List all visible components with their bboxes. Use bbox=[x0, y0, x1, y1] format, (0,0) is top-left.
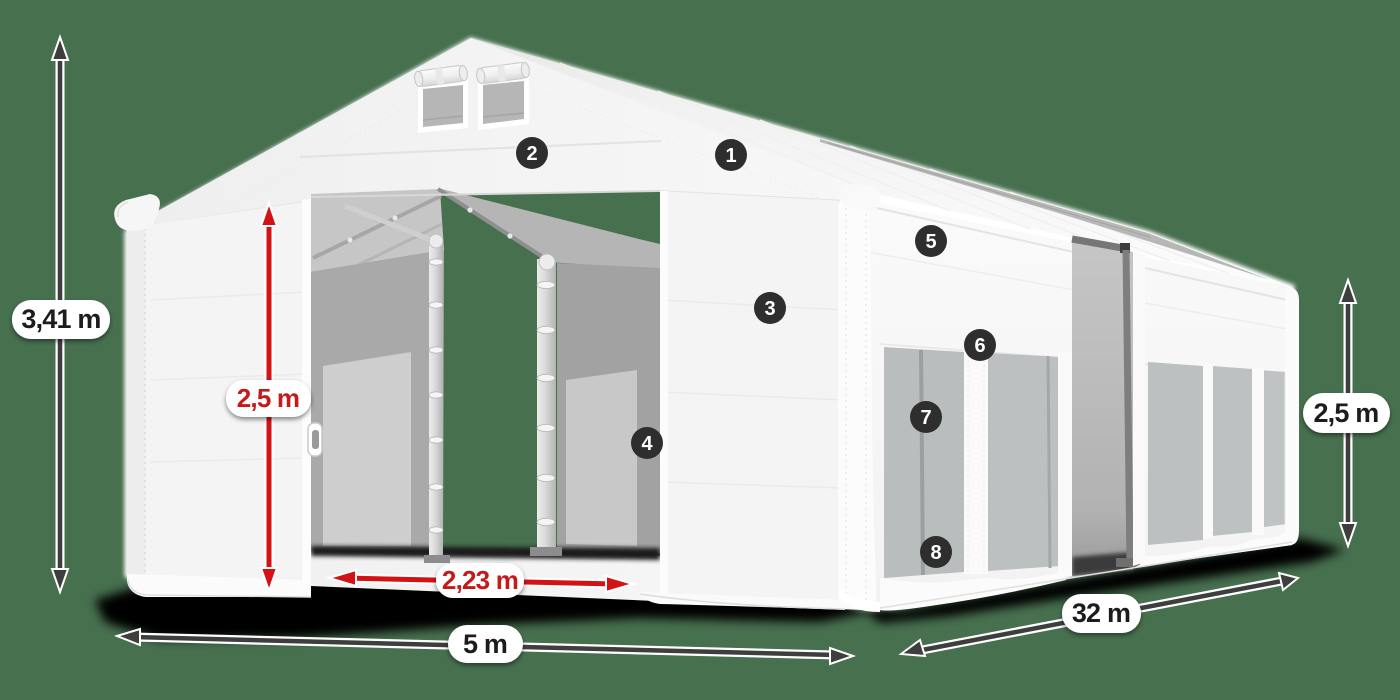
svg-text:6: 6 bbox=[974, 335, 985, 357]
svg-text:5 m: 5 m bbox=[463, 629, 507, 659]
svg-text:5: 5 bbox=[925, 231, 936, 253]
svg-text:2,23 m: 2,23 m bbox=[442, 565, 518, 595]
svg-text:3: 3 bbox=[764, 298, 775, 320]
svg-text:8: 8 bbox=[930, 542, 941, 564]
svg-text:4: 4 bbox=[641, 433, 653, 455]
svg-text:1: 1 bbox=[725, 145, 736, 167]
svg-text:7: 7 bbox=[920, 407, 931, 429]
svg-text:3,41 m: 3,41 m bbox=[21, 304, 100, 334]
svg-text:32 m: 32 m bbox=[1072, 598, 1130, 628]
svg-text:2,5 m: 2,5 m bbox=[237, 383, 300, 413]
svg-text:2,5 m: 2,5 m bbox=[1313, 398, 1378, 428]
svg-text:2: 2 bbox=[526, 143, 537, 165]
